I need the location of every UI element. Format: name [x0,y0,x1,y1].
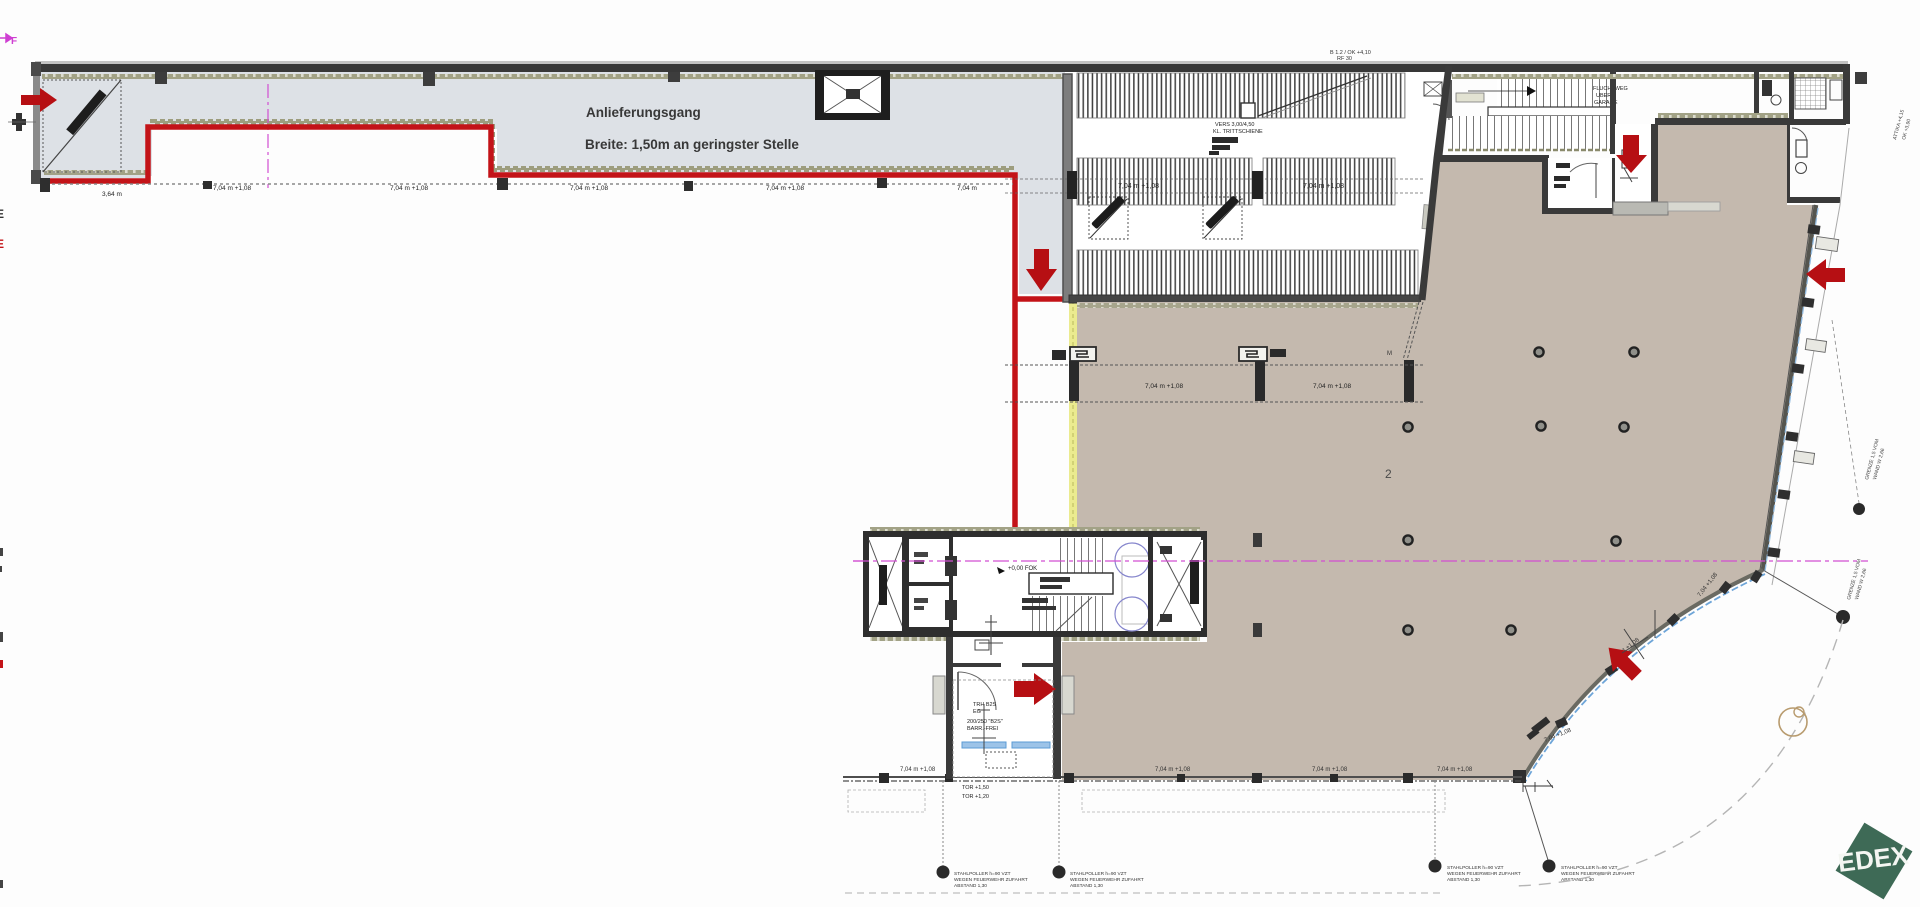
svg-text:7,04 m +1,08: 7,04 m +1,08 [1437,767,1473,773]
svg-text:TRH B2S: TRH B2S [973,702,997,708]
svg-text:Breite: 1,50m an geringster St: Breite: 1,50m an geringster Stelle [585,137,799,152]
svg-text:ABSTAND 1,30: ABSTAND 1,30 [1070,883,1103,889]
svg-text:WEGEN FEUERWEHR ZUFAHRT: WEGEN FEUERWEHR ZUFAHRT [1561,871,1635,877]
svg-text:2: 2 [1385,467,1392,481]
svg-text:7,04 m: 7,04 m [957,185,977,192]
svg-text:7,04 m +1,08: 7,04 m +1,08 [1312,767,1348,773]
svg-text:7,04 m +1,08: 7,04 m +1,08 [213,185,252,192]
svg-text:ABSTAND 1,30: ABSTAND 1,30 [1561,877,1594,883]
svg-text:KL. TRITTSCHIENE: KL. TRITTSCHIENE [1213,129,1263,135]
svg-text:E: E [0,207,4,221]
svg-text:ABSTAND 1,30: ABSTAND 1,30 [1447,877,1480,883]
svg-text:STAHLPOLLER h=90 VZT: STAHLPOLLER h=90 VZT [1561,865,1618,871]
svg-text:7,04 m +1,08: 7,04 m +1,08 [900,767,936,773]
svg-text:7,04 m +1,08: 7,04 m +1,08 [1118,183,1159,190]
svg-text:7,04 m +1,08: 7,04 m +1,08 [1313,383,1352,390]
svg-text:WEGEN FEUERWEHR ZUFAHRT: WEGEN FEUERWEHR ZUFAHRT [1447,871,1521,877]
svg-text:STAHLPOLLER h=90 VZT: STAHLPOLLER h=90 VZT [954,871,1011,877]
svg-text:7,04 m +1,08: 7,04 m +1,08 [570,185,609,192]
svg-text:M: M [1387,351,1392,357]
svg-text:TOR +1,50: TOR +1,50 [962,785,989,791]
svg-text:E: E [0,237,4,251]
svg-text:WEGEN FEUERWEHR ZUFAHRT: WEGEN FEUERWEHR ZUFAHRT [954,877,1028,883]
svg-text:7,04 m +1,08: 7,04 m +1,08 [766,185,805,192]
svg-text:WEGEN FEUERWEHR ZUFAHRT: WEGEN FEUERWEHR ZUFAHRT [1070,877,1144,883]
svg-text:TOR +1,20: TOR +1,20 [962,794,989,800]
svg-text:Anlieferungsgang: Anlieferungsgang [586,105,701,120]
svg-text:+0,00 FOK: +0,00 FOK [1008,566,1037,572]
svg-text:UBER: UBER [1596,93,1611,99]
svg-text:BARR.-FREI: BARR.-FREI [967,726,999,732]
svg-text:RF 30: RF 30 [1337,56,1352,62]
svg-text:STAHLPOLLER h=90 VZT: STAHLPOLLER h=90 VZT [1070,871,1127,877]
svg-text:7,04 m +1,08: 7,04 m +1,08 [1155,767,1191,773]
svg-text:STAHLPOLLER h=90 VZT: STAHLPOLLER h=90 VZT [1447,865,1504,871]
svg-text:F: F [11,36,17,47]
svg-text:3,64 m: 3,64 m [102,191,122,198]
svg-text:200/250 "B2S": 200/250 "B2S" [967,719,1003,725]
svg-text:7,04 m +1,08: 7,04 m +1,08 [1303,183,1344,190]
svg-text:7,04 m +1,08: 7,04 m +1,08 [390,185,429,192]
svg-text:ABSTAND 1,30: ABSTAND 1,30 [954,883,987,889]
svg-text:VERS 3,00/4,50: VERS 3,00/4,50 [1215,122,1254,128]
svg-text:7,04 m +1,08: 7,04 m +1,08 [1145,383,1184,390]
